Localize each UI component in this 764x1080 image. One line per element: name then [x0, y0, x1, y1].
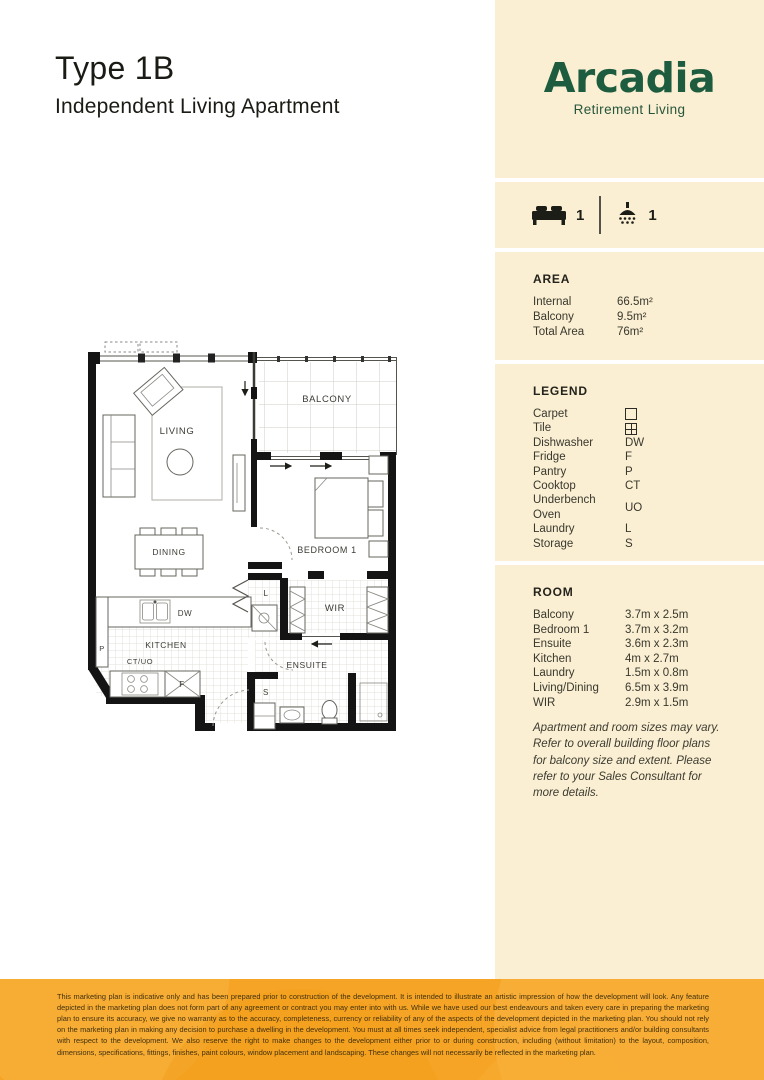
stat-divider — [599, 196, 601, 234]
room-label: Kitchen — [533, 652, 625, 667]
room-label: Bedroom 1 — [533, 623, 625, 638]
room-heading: ROOM — [533, 585, 764, 599]
legend-row: Carpet — [533, 407, 764, 421]
legend-row: Cooktop CT — [533, 479, 764, 493]
legend-row: Pantry P — [533, 465, 764, 479]
living-furniture — [103, 367, 245, 511]
legend-code: P — [625, 465, 633, 479]
ensuite-label: ENSUITE — [286, 660, 327, 670]
room-size: 2.9m x 1.5m — [625, 696, 688, 711]
sizes-disclaimer-note: Apartment and room sizes may vary. Refer… — [533, 720, 725, 802]
area-label: Balcony — [533, 310, 617, 325]
legend-label: Carpet — [533, 407, 625, 421]
carpet-swatch-icon — [625, 408, 637, 420]
sidebar-logo-section: Arcadia Retirement Living — [495, 0, 764, 178]
room-row: Kitchen 4m x 2.7m — [533, 652, 764, 667]
bathroom-count: 1 — [648, 207, 656, 224]
dw-label: DW — [178, 609, 193, 618]
room-label: Living/Dining — [533, 681, 625, 696]
balcony-label: BALCONY — [302, 394, 352, 405]
area-label: Internal — [533, 295, 617, 310]
sidebar-room-section: ROOM Balcony 3.7m x 2.5m Bedroom 1 3.7m … — [495, 565, 764, 979]
bedroom-stat: 1 — [531, 203, 584, 227]
room-row: Balcony 3.7m x 2.5m — [533, 608, 764, 623]
living-label: LIVING — [160, 426, 195, 437]
area-row: Total Area 76m² — [533, 325, 764, 340]
legal-disclaimer-text: This marketing plan is indicative only a… — [57, 991, 709, 1058]
room-size: 3.7m x 3.2m — [625, 623, 688, 638]
room-row: WIR 2.9m x 1.5m — [533, 696, 764, 711]
legend-code: DW — [625, 436, 644, 450]
legend-row: Laundry L — [533, 522, 764, 536]
legend-code: S — [625, 537, 633, 551]
room-label: Laundry — [533, 666, 625, 681]
bathroom-stat: 1 — [616, 202, 656, 228]
sidebar-stats-section: 1 1 — [495, 182, 764, 248]
page-title: Type 1B — [55, 50, 340, 87]
sidebar-legend-section: LEGEND Carpet Tile Dishwasher DW Fridge … — [495, 364, 764, 561]
room-label: Ensuite — [533, 637, 625, 652]
area-row: Internal 66.5m² — [533, 295, 764, 310]
legend-code: L — [625, 522, 631, 536]
bedroom-count: 1 — [576, 207, 584, 224]
legend-label: Cooktop — [533, 479, 625, 493]
legend-label: Pantry — [533, 465, 625, 479]
area-heading: AREA — [533, 272, 764, 286]
legend-code: UO — [625, 501, 642, 515]
area-label: Total Area — [533, 325, 617, 340]
shower-icon — [616, 202, 639, 228]
room-size: 3.6m x 2.3m — [625, 637, 688, 652]
brand-name: Arcadia — [495, 58, 764, 99]
storage-label: S — [263, 688, 269, 697]
legend-label: Laundry — [533, 522, 625, 536]
legend-code: CT — [625, 479, 640, 493]
tile-swatch-icon — [625, 423, 637, 435]
legend-row: Underbench Oven UO — [533, 493, 764, 522]
legend-label: Storage — [533, 537, 625, 551]
bedroom-furniture — [315, 456, 388, 557]
sidebar-area-section: AREA Internal 66.5m² Balcony 9.5m² Total… — [495, 252, 764, 360]
dining-label: DINING — [152, 547, 185, 557]
room-row: Bedroom 1 3.7m x 3.2m — [533, 623, 764, 638]
window-band — [88, 342, 257, 364]
room-size: 4m x 2.7m — [625, 652, 679, 667]
bedroom-label: BEDROOM 1 — [297, 545, 356, 555]
legend-label: Fridge — [533, 450, 625, 464]
legend-label: Tile — [533, 421, 625, 435]
room-size: 3.7m x 2.5m — [625, 608, 688, 623]
laundry-label: L — [263, 589, 268, 598]
room-label: WIR — [533, 696, 625, 711]
legend-heading: LEGEND — [533, 384, 764, 398]
room-row: Ensuite 3.6m x 2.3m — [533, 637, 764, 652]
brand-logo: Arcadia Retirement Living — [495, 58, 764, 117]
title-block: Type 1B Independent Living Apartment — [55, 50, 340, 119]
floor-plan-drawing: LIVING BALCONY DINING KITCHEN CT/UO DW F… — [80, 335, 410, 745]
legend-code: F — [625, 450, 632, 464]
area-value: 9.5m² — [617, 310, 646, 325]
ct-uo-label: CT/UO — [127, 657, 153, 666]
area-row: Balcony 9.5m² — [533, 310, 764, 325]
legend-row: Dishwasher DW — [533, 436, 764, 450]
wir-label: WIR — [325, 603, 345, 614]
room-size: 1.5m x 0.8m — [625, 666, 688, 681]
room-size: 6.5m x 3.9m — [625, 681, 688, 696]
kitchen-label: KITCHEN — [145, 640, 187, 650]
fridge-label: F — [179, 680, 185, 689]
legend-row: Storage S — [533, 537, 764, 551]
footer-disclaimer-bar: This marketing plan is indicative only a… — [0, 979, 764, 1080]
marketing-plan-page: { "page": { "title": "Type 1B", "subtitl… — [0, 0, 764, 1080]
room-row: Living/Dining 6.5m x 3.9m — [533, 681, 764, 696]
page-subtitle: Independent Living Apartment — [55, 95, 340, 119]
room-row: Laundry 1.5m x 0.8m — [533, 666, 764, 681]
brand-tagline: Retirement Living — [495, 102, 764, 117]
area-value: 76m² — [617, 325, 643, 340]
pantry-label: P — [99, 644, 105, 653]
legend-label: Underbench Oven — [533, 493, 625, 522]
legend-label: Dishwasher — [533, 436, 625, 450]
legend-row: Tile — [533, 421, 764, 435]
area-value: 66.5m² — [617, 295, 653, 310]
legend-row: Fridge F — [533, 450, 764, 464]
bed-icon — [531, 203, 567, 227]
room-label: Balcony — [533, 608, 625, 623]
